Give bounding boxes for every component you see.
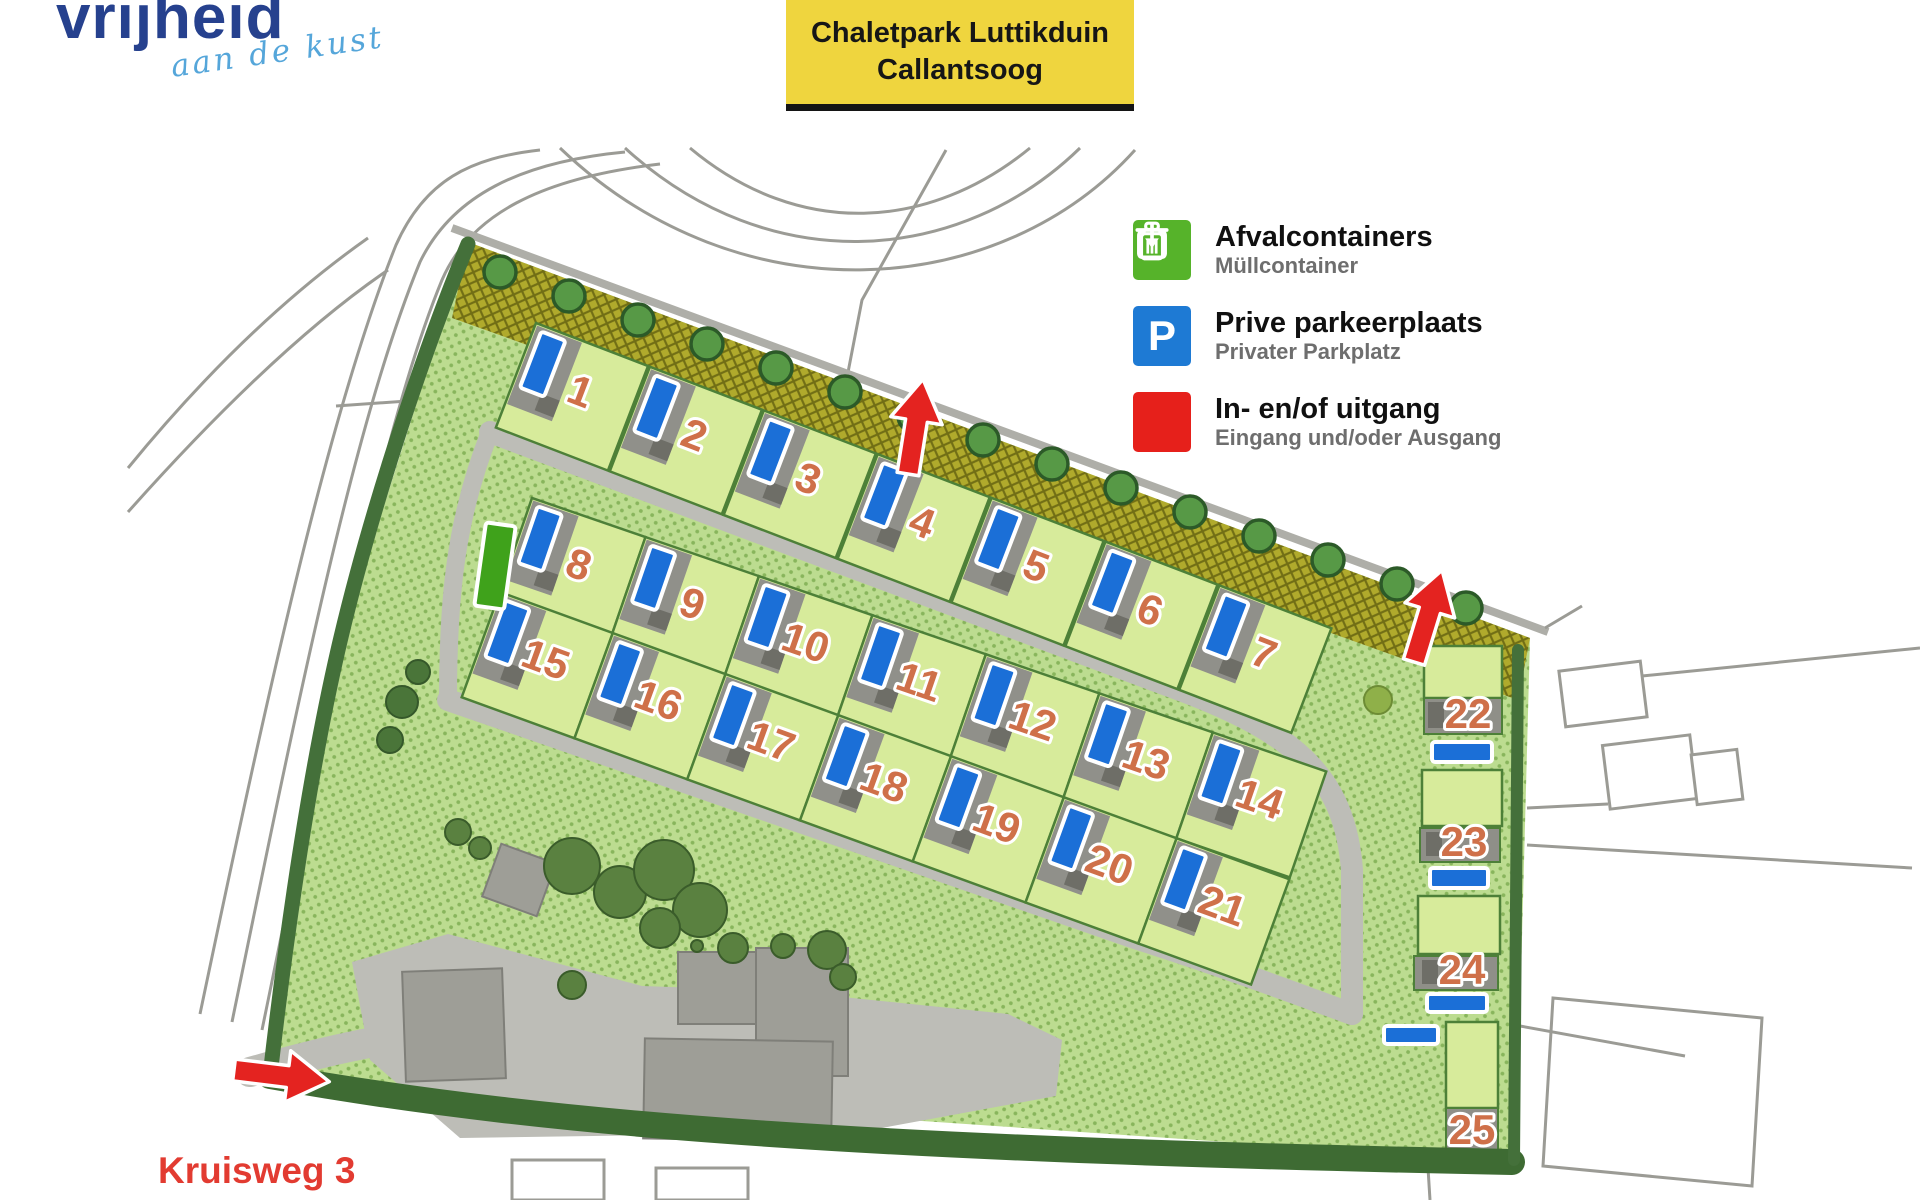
legend-item-parking: P Prive parkeerplaats Privater Parkplatz [1133,306,1653,366]
legend-item-entrance: In- en/of uitgang Eingang und/oder Ausga… [1133,392,1653,452]
parking-symbol: P [1148,315,1176,357]
park-title-box: Chaletpark Luttikduin Callantsoog [786,0,1134,111]
site-plan-map: 1 2 3 4 5 6 7 8 9 10 11 12 13 14 15 16 1… [0,0,1920,1200]
site-plan-page: 1 2 3 4 5 6 7 8 9 10 11 12 13 14 15 16 1… [0,0,1920,1200]
legend-sublabel: Müllcontainer [1215,252,1433,280]
street-label: Kruisweg 3 [158,1150,355,1192]
plot-number: 23 [1441,818,1488,865]
plot-number: 25 [1449,1106,1496,1153]
legend-item-waste: Afvalcontainers Müllcontainer [1133,220,1653,280]
entrance-icon [1133,392,1191,452]
legend-label: Afvalcontainers [1215,222,1433,252]
plot-number: 22 [1445,690,1492,737]
park-title-line1: Chaletpark Luttikduin [811,15,1109,52]
legend-label: Prive parkeerplaats [1215,308,1483,338]
park-title-line2: Callantsoog [877,52,1043,89]
legend-sublabel: Privater Parkplatz [1215,338,1483,366]
plot: 23 [1420,770,1502,888]
legend-label: In- en/of uitgang [1215,394,1501,424]
plot-number: 24 [1439,946,1486,993]
plot: 24 [1414,896,1500,1012]
legend-sublabel: Eingang und/oder Ausgang [1215,424,1501,452]
legend: Afvalcontainers Müllcontainer P Prive pa… [1133,220,1653,478]
plot: 22 [1424,646,1502,762]
parking-icon: P [1133,306,1191,366]
